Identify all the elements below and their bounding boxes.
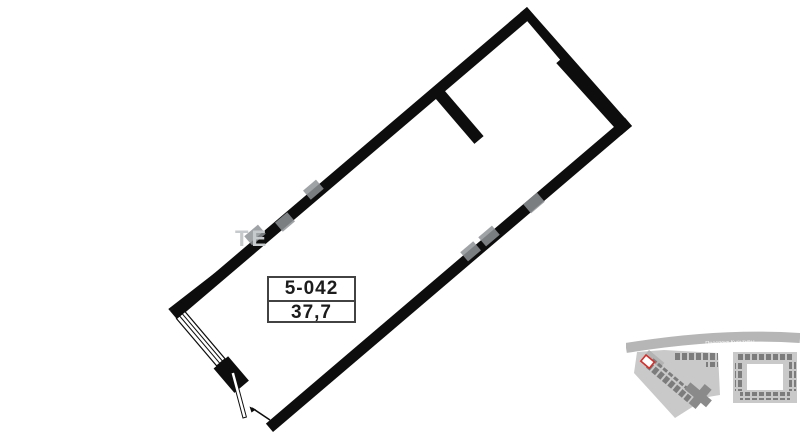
unit-label-box: 5-042 37,7 [267,276,356,323]
partition-wall [432,87,483,144]
unit-number: 5-042 [269,278,354,302]
courtyard [747,364,783,390]
door-swing-line [250,407,271,421]
wall-top-left [170,7,534,319]
watermark-letters: ТЕ [235,226,269,252]
watermark-wall-patches [244,180,544,262]
building-left [634,350,720,418]
building-right [733,352,797,403]
wall-top-right [520,7,632,135]
wall-top-left-step [168,264,228,311]
site-minimap: Проспект Культуры [626,326,800,430]
minimap-road-label: Проспект Культуры [705,339,754,347]
unit-area: 37,7 [269,302,354,324]
window [177,312,226,366]
floor-plan-page: 5-042 37,7 ТЕ Проспект Культуры [0,0,800,442]
wall-bottom [266,118,632,432]
